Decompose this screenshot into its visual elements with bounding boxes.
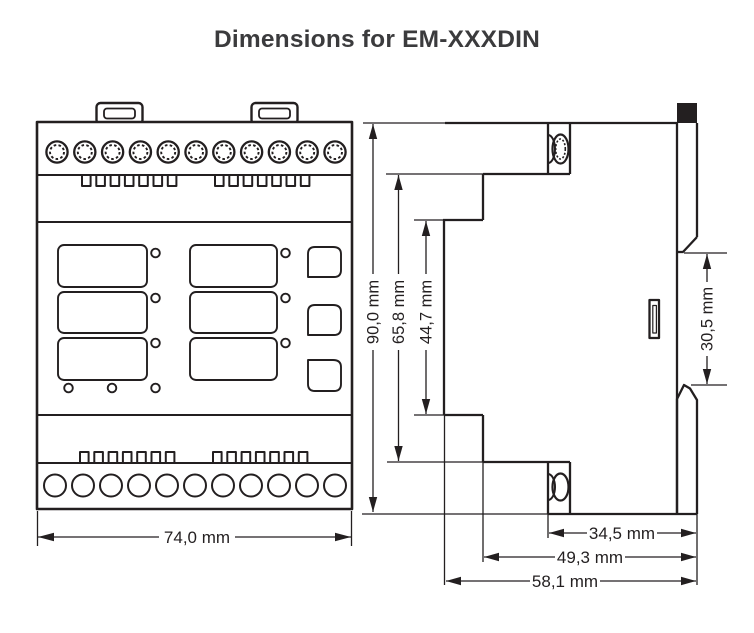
side-view: 90,0 mm 65,8 mm 44,7 mm xyxy=(362,103,727,591)
dim-height-terminal: 65,8 mm xyxy=(390,175,408,461)
dim-height-face: 44,7 mm xyxy=(418,221,436,414)
top-terminal-recess xyxy=(548,123,570,174)
dim-front-width: 74,0 mm xyxy=(38,511,352,547)
front-body-outline xyxy=(37,122,352,509)
dimension-drawing-page: Dimensions for EM-XXXDIN xyxy=(0,0,754,633)
dim-label-65-8: 65,8 mm xyxy=(390,280,408,344)
release-clip xyxy=(650,300,660,338)
dim-height-total: 90,0 mm xyxy=(365,124,383,512)
dim-depth-total: 58,1 mm xyxy=(446,572,696,591)
dim-depth-mid: 49,3 mm xyxy=(484,548,696,567)
extension-lines xyxy=(362,123,727,585)
dimension-diagram: 74,0 mm xyxy=(0,0,754,633)
dim-label-58-1: 58,1 mm xyxy=(532,572,598,591)
dim-label-90-0: 90,0 mm xyxy=(365,280,383,344)
front-view: 74,0 mm xyxy=(37,103,352,547)
page-title: Dimensions for EM-XXXDIN xyxy=(0,26,754,54)
dim-depth-rear: 34,5 mm xyxy=(549,524,696,543)
dim-label-34-5: 34,5 mm xyxy=(589,524,655,543)
din-rail-stop-block xyxy=(677,103,697,123)
dim-label-74-0: 74,0 mm xyxy=(164,528,230,547)
dim-label-30-5: 30,5 mm xyxy=(699,287,717,351)
dim-rail-window: 30,5 mm xyxy=(699,254,717,384)
bottom-terminal-recess xyxy=(548,462,570,514)
dim-label-49-3: 49,3 mm xyxy=(557,548,623,567)
rail-hook-lower xyxy=(677,385,697,514)
rail-hook-upper xyxy=(677,123,697,252)
dim-label-44-7: 44,7 mm xyxy=(418,280,436,344)
